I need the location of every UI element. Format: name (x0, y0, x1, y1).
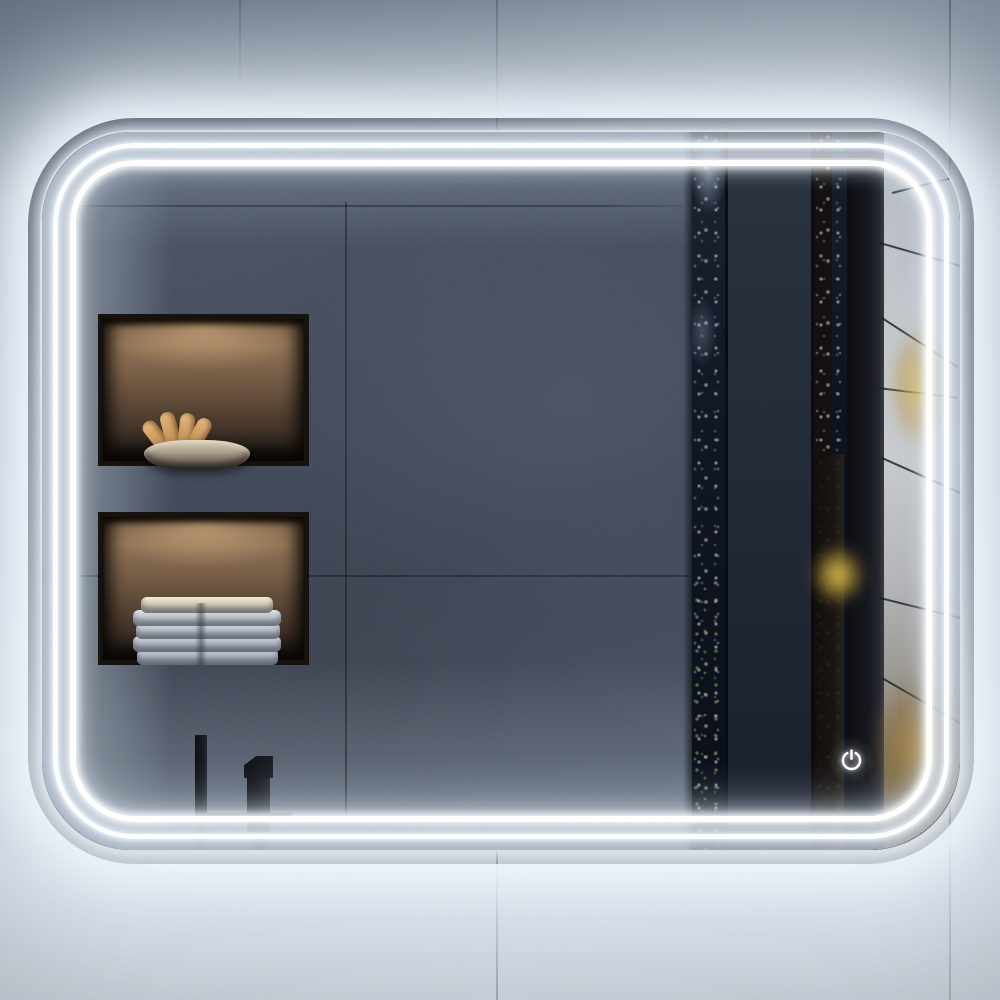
power-touch-button[interactable] (828, 737, 874, 783)
led-mirror (40, 130, 962, 852)
autumn-leaves (870, 672, 962, 822)
wall-niche-towels (98, 512, 309, 665)
towel-fold-shadow (195, 603, 207, 665)
faucet-base (195, 813, 292, 822)
wall-niche-bowl (98, 314, 309, 466)
forest-reflection (692, 132, 962, 850)
reflected-tile-seam (345, 202, 347, 827)
stone-bowl (144, 440, 250, 470)
faucet-spout (247, 770, 270, 832)
tree-trunk (814, 455, 844, 850)
foliage-band (692, 132, 725, 850)
scene-bathroom (0, 0, 1000, 1000)
folded-towel (141, 597, 273, 613)
faucet-reflection (196, 824, 206, 852)
reflected-tile-seam (82, 205, 682, 207)
autumn-leaves (887, 322, 955, 452)
autumn-leaves (810, 544, 866, 606)
power-icon (838, 747, 865, 774)
faucet-reflection (252, 832, 268, 852)
faucet-handle (195, 735, 207, 821)
green-foliage-speckles (692, 577, 725, 850)
dark-pillar (725, 132, 814, 850)
towel-stack (133, 597, 281, 667)
